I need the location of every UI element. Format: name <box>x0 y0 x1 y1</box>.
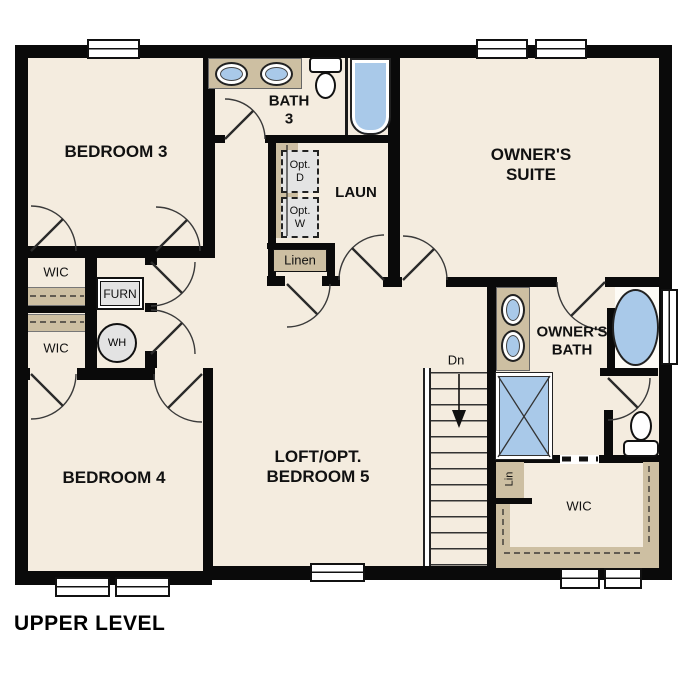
wall-suite-south-east <box>605 277 672 287</box>
room-label-loft: LOFT/OPT. BEDROOM 5 <box>267 447 370 487</box>
wall-wic-east <box>85 258 97 368</box>
wall-wc-north <box>600 368 658 376</box>
window <box>661 289 678 365</box>
shower-pan <box>499 376 549 456</box>
wall-furn-east-stub1 <box>145 258 157 265</box>
window <box>535 39 587 59</box>
window <box>476 39 528 59</box>
wall-laundry-south-stub-west <box>322 276 340 286</box>
toilet-tank-icon <box>309 57 342 73</box>
toilet-tank-icon <box>623 440 659 457</box>
stairs-down-label: Dn <box>448 352 465 367</box>
wall-laundry-south-stub-east <box>383 277 402 287</box>
wall-bath3-south-stub <box>203 135 225 143</box>
toilet-bowl-icon <box>315 72 336 99</box>
owners-tub-icon <box>612 289 659 366</box>
wall-exterior-bottom-bed4 <box>15 571 212 585</box>
toilet-bowl-icon <box>630 411 652 441</box>
bathtub-icon <box>350 58 391 135</box>
room-label-linen: Linen <box>284 252 316 267</box>
wall-tub-divider <box>345 58 348 135</box>
window <box>310 563 365 582</box>
sink-basin <box>506 335 520 357</box>
optional-washer: Opt. W <box>281 197 319 238</box>
loft-line2: BEDROOM 5 <box>267 467 370 487</box>
room-label-bedroom3: BEDROOM 3 <box>65 142 168 162</box>
staircase <box>430 372 487 566</box>
opt-washer-line1: Opt. <box>290 205 311 218</box>
cased-opening <box>560 455 599 464</box>
stair-railing <box>423 368 431 566</box>
page-title: UPPER LEVEL <box>14 612 165 636</box>
water-heater-icon: WH <box>97 323 137 363</box>
owners-bath-line2: BATH <box>536 341 607 359</box>
window <box>604 568 642 589</box>
window <box>87 39 140 59</box>
room-label-wic-bed4: WIC <box>43 340 68 355</box>
wall-suite-south <box>446 277 557 287</box>
room-label-bedroom4: BEDROOM 4 <box>63 468 166 488</box>
window <box>115 577 170 597</box>
wic-shelf <box>28 314 85 332</box>
wall-bed4-north <box>77 368 155 380</box>
bath3-line2: 3 <box>269 110 310 128</box>
window <box>55 577 110 597</box>
wic-shelf <box>643 462 659 568</box>
opt-dryer-line2: D <box>296 172 304 185</box>
wic-shelf <box>496 547 658 568</box>
furnace-label: FURN <box>100 281 140 306</box>
shower-icon <box>495 372 553 460</box>
floor-plan: Opt. D Opt. W FURN WH <box>0 0 687 687</box>
optional-dryer: Opt. D <box>281 150 319 193</box>
sink-basin <box>506 299 520 321</box>
sink-icon <box>501 294 525 326</box>
opt-dryer-line1: Opt. <box>290 159 311 172</box>
bath3-line1: BATH <box>269 92 310 110</box>
water-heater-label: WH <box>108 337 126 349</box>
owners-suite-line2: SUITE <box>491 165 572 185</box>
wall-bedroom3-south <box>15 246 215 258</box>
wall-loft-west <box>203 368 213 571</box>
wall-exterior-left <box>15 45 28 585</box>
loft-line1: LOFT/OPT. <box>267 447 370 467</box>
sink-icon <box>501 330 525 362</box>
opt-washer-line2: W <box>295 218 305 231</box>
sink-basin <box>265 67 288 81</box>
room-label-bath3: BATH 3 <box>269 92 310 127</box>
wall-furn-east-stub3 <box>145 351 157 368</box>
sink-icon <box>215 62 248 86</box>
window <box>560 568 600 589</box>
wic-shelf <box>496 504 510 550</box>
wall-bed4-north-stub1 <box>15 368 30 380</box>
owners-bath-line1: OWNER'S <box>536 323 607 341</box>
wall-exterior-bottom <box>203 566 672 580</box>
room-label-wic-owners: WIC <box>566 498 591 513</box>
owners-suite-line1: OWNER'S <box>491 145 572 165</box>
room-label-owners-suite: OWNER'S SUITE <box>491 145 572 185</box>
room-label-owners-bath: OWNER'S BATH <box>536 323 607 358</box>
wall-furn-east-stub2 <box>145 303 157 312</box>
room-label-wic-bed3: WIC <box>43 264 68 279</box>
wall-bath3-south <box>265 135 390 143</box>
sink-basin <box>220 67 243 81</box>
sink-icon <box>260 62 293 86</box>
furnace-icon: FURN <box>96 277 144 310</box>
wall-wic-divider <box>28 306 85 313</box>
room-label-lin: Lin <box>504 472 517 487</box>
wall-linen-south-stub <box>267 276 285 286</box>
wic-shelf <box>28 287 85 306</box>
room-label-laundry: LAUN <box>335 184 377 202</box>
